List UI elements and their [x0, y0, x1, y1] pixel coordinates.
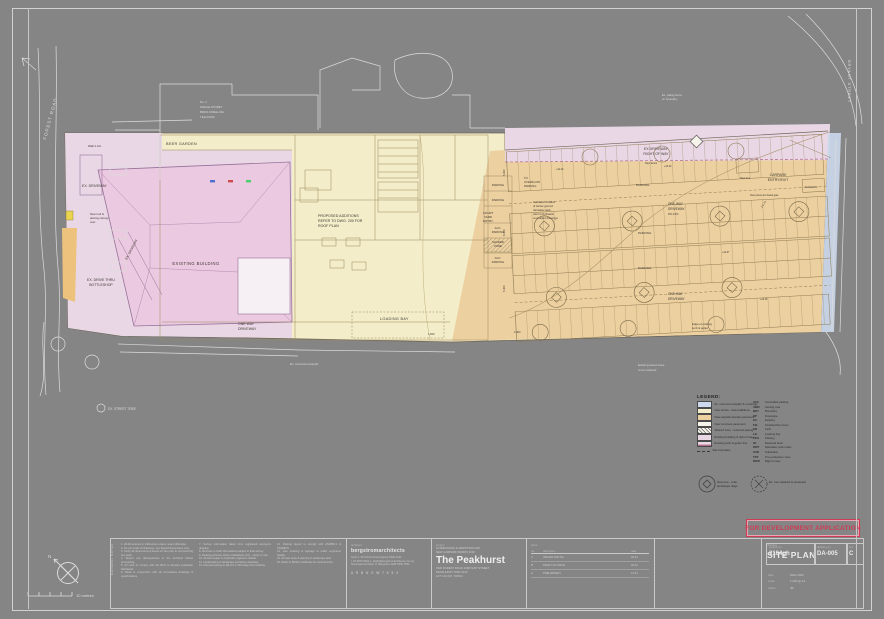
sheet-border-outer [12, 8, 872, 611]
sheet-border-inner-right [856, 8, 857, 609]
sheet-binding-margin [28, 8, 29, 609]
drawing-sheet: Wall 1.0m BEER GARDEN EX. DRIVEWAY New r… [0, 0, 884, 619]
